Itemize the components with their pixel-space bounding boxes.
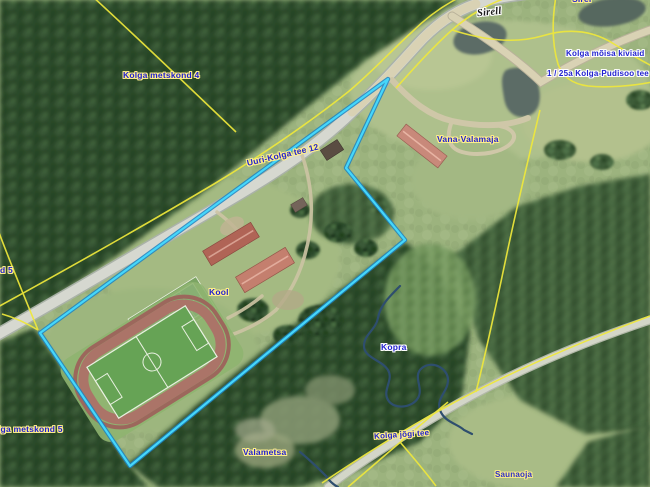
label-kolga-metskond-4: Kolga metskond 4 [123, 70, 199, 80]
label-kolga-moisa-kiviaid: Kolga mõisa kiviaid [566, 49, 645, 58]
label-vana-valamaja: Vana-Valamaja [437, 134, 499, 144]
label-metskond-5-clipped-mid: d 5 [0, 265, 13, 275]
label-kopra: Kopra [381, 342, 407, 352]
label-sirel-clipped: Sirel [572, 0, 591, 4]
label-kolga-pudisoo-tee: 1 / 25a Kolga-Pudisoo tee [547, 69, 649, 78]
label-kool: Kool [209, 287, 229, 297]
aerial-map-view[interactable]: Sirell Sirel Kolga mõisa kiviaid 1 / 25a… [0, 0, 650, 487]
label-metskond-5-clipped-bottom: lga metskond 5 [0, 424, 63, 434]
label-valametsa: Valametsa [243, 447, 286, 457]
label-saunaoja: Saunaoja [495, 470, 532, 479]
